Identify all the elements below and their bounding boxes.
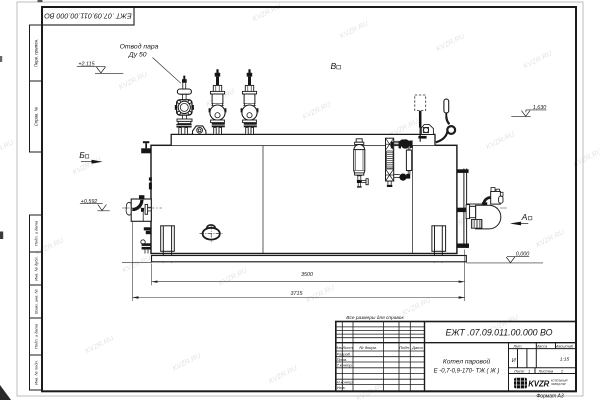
- svg-text:Перв. примен.: Перв. примен.: [33, 39, 38, 68]
- svg-text:Подп. и дата: Подп. и дата: [33, 220, 38, 246]
- svg-text:№ докум.: № докум.: [359, 345, 377, 350]
- svg-text:Инв. № подл.: Инв. № подл.: [33, 360, 38, 385]
- svg-text:Лит.: Лит.: [512, 343, 522, 348]
- svg-text:1:15: 1:15: [560, 356, 570, 362]
- svg-text:Б: Б: [79, 150, 85, 160]
- svg-text:Подп. и дата: Подп. и дата: [33, 323, 38, 349]
- svg-text:ЗАВОД РЭР: ЗАВОД РЭР: [551, 382, 566, 386]
- svg-text:Листов: Листов: [538, 368, 554, 373]
- svg-text:Все размеры для справок: Все размеры для справок: [346, 315, 404, 321]
- svg-text:Инв. № дубл.: Инв. № дубл.: [33, 256, 38, 281]
- svg-text:Ду 50: Ду 50: [128, 51, 147, 58]
- svg-text:Пров.: Пров.: [337, 357, 348, 362]
- svg-text:Е -0,7-0,9-170- ТЖ ( Ж ): Е -0,7-0,9-170- ТЖ ( Ж ): [434, 369, 500, 375]
- svg-text:В: В: [331, 61, 337, 71]
- svg-text:Лист: Лист: [341, 345, 353, 350]
- svg-text:3715: 3715: [291, 291, 304, 297]
- svg-text:1: 1: [528, 368, 530, 373]
- svg-text:3500: 3500: [301, 272, 313, 278]
- svg-text:Формат А3: Формат А3: [536, 394, 564, 400]
- svg-text:Справ. №: Справ. №: [33, 106, 38, 126]
- svg-text:Масса: Масса: [536, 343, 548, 348]
- svg-text:Масштаб: Масштаб: [555, 343, 574, 348]
- svg-text:ЕЖТ .07.09.011.00.000 ВО: ЕЖТ .07.09.011.00.000 ВО: [446, 327, 553, 337]
- svg-text:Разраб.: Разраб.: [337, 352, 351, 357]
- svg-text:Котел паровой: Котел паровой: [443, 357, 491, 365]
- svg-text:Т.контр.: Т.контр.: [337, 363, 353, 368]
- svg-text:KVZR: KVZR: [528, 379, 549, 388]
- svg-text:Н.контр.: Н.контр.: [337, 379, 354, 384]
- svg-text:Дата: Дата: [411, 345, 423, 350]
- svg-text:Подп.: Подп.: [399, 345, 410, 350]
- svg-text:ЕЖТ .07.09.011.00.000 ВО: ЕЖТ .07.09.011.00.000 ВО: [44, 11, 132, 20]
- svg-text:Утв.: Утв.: [337, 385, 346, 390]
- svg-text:КОТЕЛЬНЫЙ: КОТЕЛЬНЫЙ: [551, 379, 567, 383]
- svg-text:Отвод пара: Отвод пара: [120, 42, 159, 50]
- svg-text:А: А: [521, 212, 528, 222]
- svg-text:Взам. инв. №: Взам. инв. №: [33, 288, 38, 313]
- svg-text:И: И: [512, 358, 516, 364]
- svg-text:Лист: Лист: [513, 368, 525, 373]
